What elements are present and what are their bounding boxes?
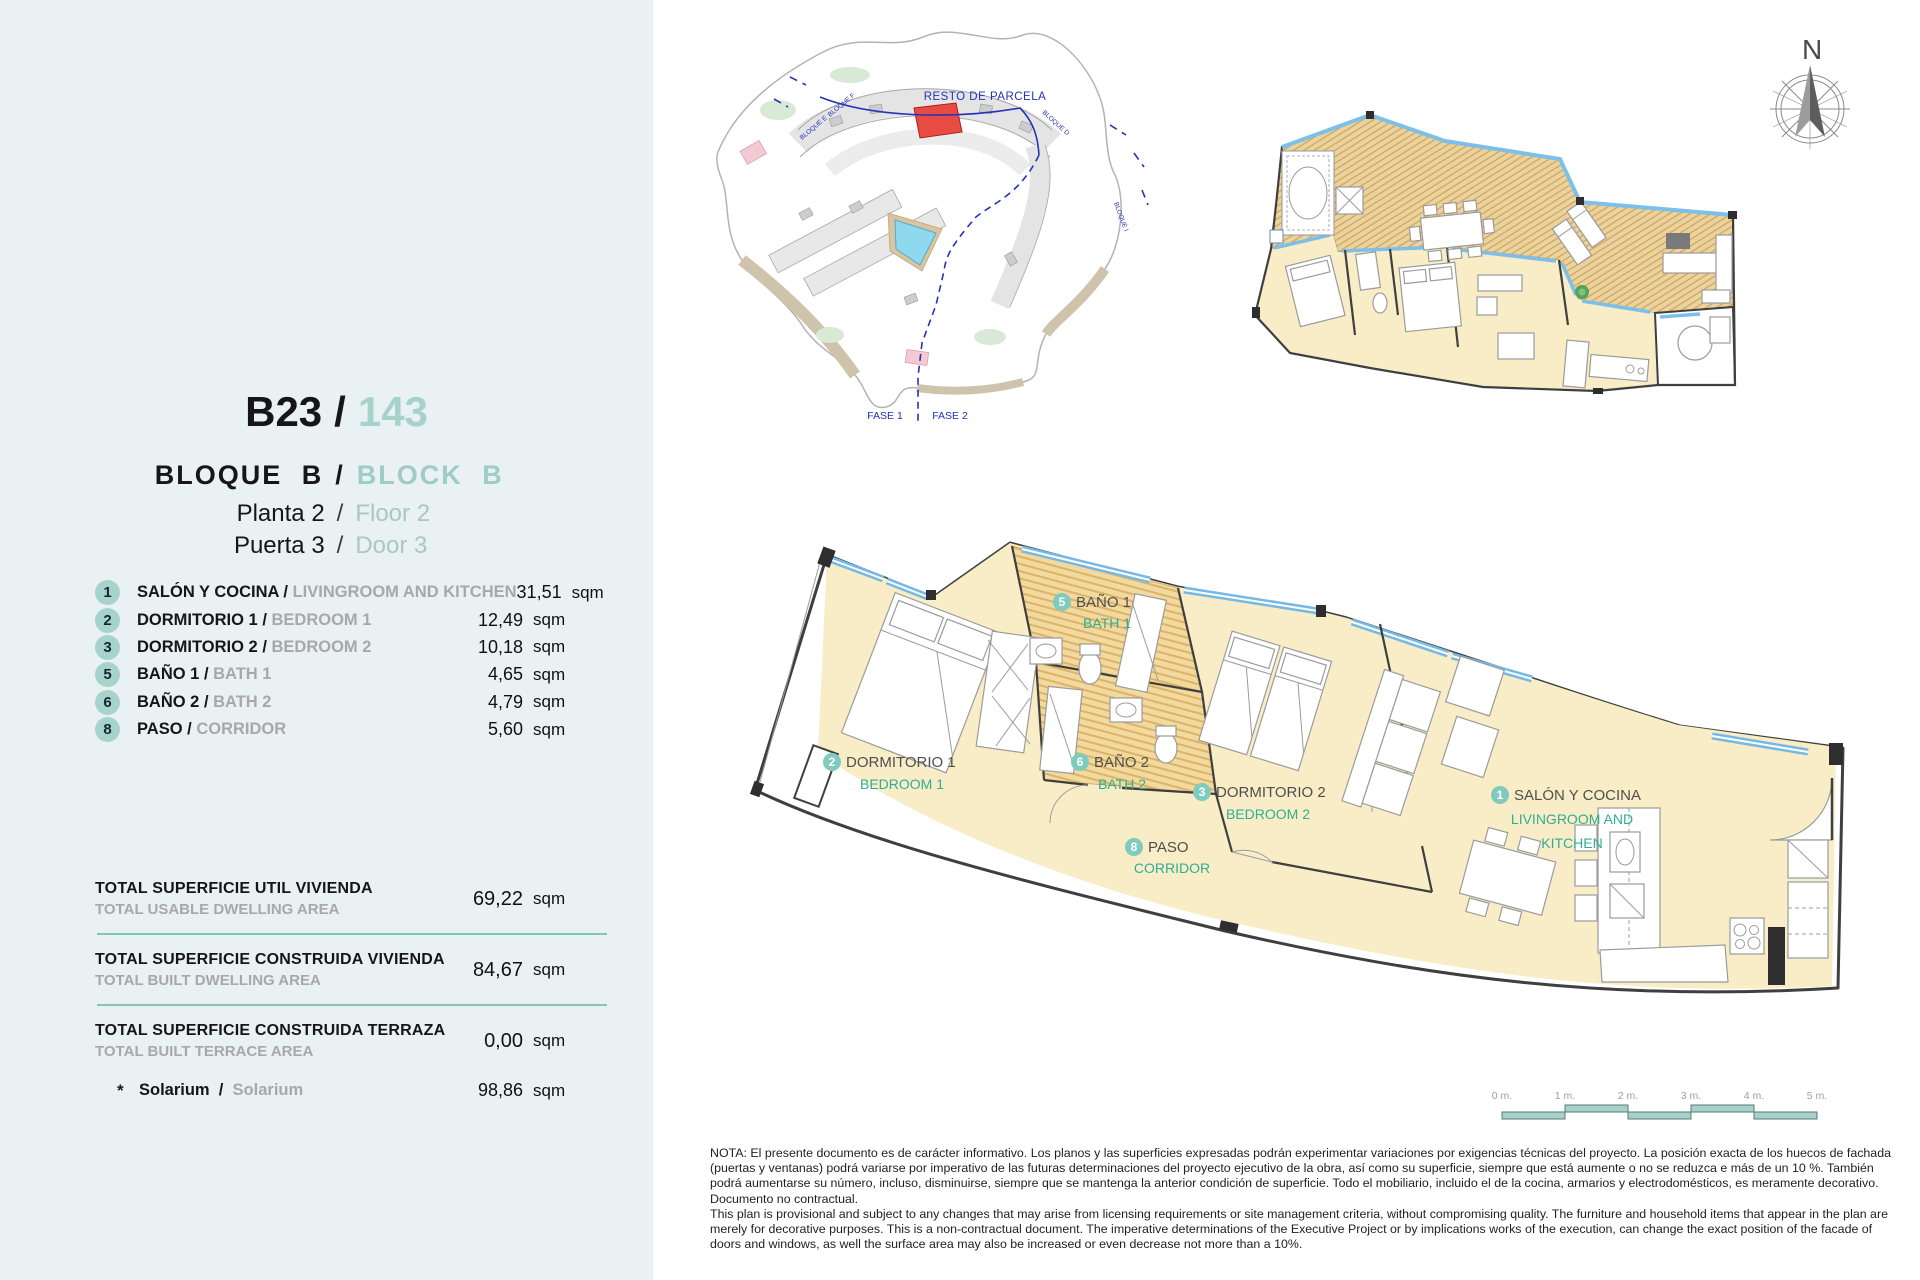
room-number-badge: 1 (95, 580, 120, 605)
scale-bar: 0 m. 1 m. 2 m. 3 m. 4 m. 5 m. (1490, 1085, 1850, 1140)
total-unit: sqm (533, 1031, 575, 1051)
room-number-badge: 5 (95, 662, 120, 687)
door-es: Puerta 3 (70, 532, 325, 560)
totals-section: TOTAL SUPERFICIE UTIL VIVIENDA TOTAL USA… (95, 880, 575, 1101)
pink-area (905, 350, 929, 366)
svg-text:3 m.: 3 m. (1681, 1090, 1701, 1102)
floor-en: Floor 2 (355, 500, 610, 528)
room-area-value: 10,18 (461, 637, 523, 658)
svg-text:BAÑO 2: BAÑO 2 (1094, 754, 1149, 771)
svg-text:3: 3 (1199, 785, 1206, 799)
solarium-es: Solarium (139, 1081, 210, 1099)
block-en: BLOCK B (357, 460, 610, 491)
room-sep: / (262, 638, 267, 656)
room-row-corridor: 8 PASO / CORRIDOR 5,60 sqm (95, 716, 575, 743)
svg-text:BATH 2: BATH 2 (1098, 776, 1146, 792)
floor-sep: / (325, 500, 356, 528)
fase1-label: FASE 1 (867, 410, 903, 422)
terrace-side-table (1336, 187, 1363, 214)
unit-title: B23 / 143 (70, 388, 610, 436)
total-terrace-area: TOTAL SUPERFICIE CONSTRUIDA TERRAZA TOTA… (95, 1022, 575, 1060)
room-area-value: 4,65 (461, 664, 523, 685)
unit-code: B23 (70, 388, 322, 436)
green-area (974, 329, 1006, 345)
total-value: 84,67 (461, 959, 523, 982)
main-floor-plan: 5 BAÑO 1 BATH 1 2 DORMITORIO 1 BEDROOM 1… (610, 540, 1900, 1020)
floorplan-sheet: { "colors": { "panel_bg": "#e9f1f3", "ac… (0, 0, 1920, 1280)
svg-text:2 m.: 2 m. (1618, 1090, 1638, 1102)
room-sep: / (262, 611, 267, 629)
svg-text:5: 5 (1059, 595, 1066, 609)
green-area (760, 100, 796, 120)
svg-text:PASO: PASO (1148, 839, 1189, 856)
highlighted-unit (914, 103, 962, 138)
svg-text:KITCHEN: KITCHEN (1541, 835, 1602, 851)
block-es: BLOQUE B (70, 460, 323, 491)
scale-segments (1502, 1105, 1817, 1119)
room-name-es: PASO (137, 720, 183, 738)
room-number-badge: 6 (95, 690, 120, 715)
unit-number: 143 (358, 388, 610, 436)
svg-text:BEDROOM 2: BEDROOM 2 (1226, 806, 1310, 822)
door-line: Puerta 3 / Door 3 (70, 532, 610, 560)
floor-es: Planta 2 (70, 500, 325, 528)
total-usable-area: TOTAL SUPERFICIE UTIL VIVIENDA TOTAL USA… (95, 880, 575, 918)
svg-text:CORRIDOR: CORRIDOR (1134, 860, 1210, 876)
site-plan: RESTO DE PARCELA FASE 1 FASE 2 BLOQUE E … (690, 5, 1165, 445)
room-name-es: DORMITORIO 1 (137, 611, 258, 629)
plant-center (1579, 289, 1586, 296)
room-number-badge: 3 (95, 635, 120, 660)
divider (97, 933, 607, 935)
room-area-unit: sqm (533, 665, 575, 685)
room-area-value: 31,51 (517, 582, 562, 603)
note-spanish: NOTA: El presente documento es de caráct… (710, 1146, 1896, 1207)
total-title-en: TOTAL BUILT TERRACE AREA (95, 1043, 461, 1060)
svg-text:BEDROOM 1: BEDROOM 1 (860, 776, 944, 792)
green-area (816, 327, 844, 343)
total-value: 69,22 (461, 888, 523, 911)
block-line: BLOQUE B / BLOCK B (70, 460, 610, 491)
room-name-en: BEDROOM 2 (272, 638, 372, 656)
room-sep: / (204, 665, 209, 683)
room-number-badge: 8 (95, 717, 120, 742)
door-sep: / (325, 532, 356, 560)
room-row-bath1: 5 BAÑO 1 / BATH 1 4,65 sqm (95, 661, 575, 688)
total-title-en: TOTAL USABLE DWELLING AREA (95, 901, 461, 918)
svg-text:DORMITORIO 1: DORMITORIO 1 (846, 754, 956, 771)
total-built-area: TOTAL SUPERFICIE CONSTRUIDA VIVIENDA TOT… (95, 951, 575, 989)
solarium-row: * Solarium / Solarium 98,86 sqm (95, 1080, 575, 1101)
total-title-en: TOTAL BUILT DWELLING AREA (95, 972, 461, 989)
room-name-en: CORRIDOR (196, 720, 286, 738)
room-name-en: BEDROOM 1 (272, 611, 372, 629)
svg-text:0 m.: 0 m. (1492, 1090, 1512, 1102)
solarium-unit: sqm (533, 1081, 575, 1101)
block-sep: / (323, 460, 357, 491)
total-unit: sqm (533, 960, 575, 980)
note-english: This plan is provisional and subject to … (710, 1207, 1896, 1253)
room-row-bedroom2: 3 DORMITORIO 2 / BEDROOM 2 10,18 sqm (95, 634, 575, 661)
interior-floor (818, 543, 1836, 989)
room-row-bath2: 6 BAÑO 2 / BATH 2 4,79 sqm (95, 689, 575, 716)
room-area-unit: sqm (533, 692, 575, 712)
solarium-en: Solarium (233, 1081, 304, 1099)
room-name-en: LIVINGROOM AND KITCHEN (293, 583, 517, 601)
fase2-label: FASE 2 (932, 410, 968, 422)
room-area-unit: sqm (533, 720, 575, 740)
solarium-star: * (95, 1081, 121, 1101)
svg-text:6: 6 (1077, 755, 1084, 769)
resto-de-parcela-label: RESTO DE PARCELA (924, 91, 1047, 103)
solarium-value: 98,86 (461, 1080, 523, 1101)
floor-line: Planta 2 / Floor 2 (70, 500, 610, 528)
room-row-salon: 1 SALÓN Y COCINA / LIVINGROOM AND KITCHE… (95, 579, 575, 606)
room-area-value: 5,60 (461, 719, 523, 740)
total-title-es: TOTAL SUPERFICIE UTIL VIVIENDA (95, 880, 461, 898)
divider (97, 1004, 607, 1006)
room-area-value: 4,79 (461, 692, 523, 713)
room-name-en: BATH 1 (213, 665, 271, 683)
room-sep: / (204, 693, 209, 711)
svg-text:2: 2 (829, 755, 836, 769)
svg-text:5 m.: 5 m. (1807, 1090, 1827, 1102)
room-row-bedroom1: 2 DORMITORIO 1 / BEDROOM 1 12,49 sqm (95, 606, 575, 633)
green-area (830, 67, 870, 83)
total-title-es: TOTAL SUPERFICIE CONSTRUIDA VIVIENDA (95, 951, 461, 969)
north-letter: N (1802, 34, 1822, 65)
total-unit: sqm (533, 889, 575, 909)
svg-text:1: 1 (1497, 788, 1504, 802)
total-value: 0,00 (461, 1030, 523, 1053)
svg-text:SALÓN Y COCINA: SALÓN Y COCINA (1514, 787, 1641, 804)
total-title-es: TOTAL SUPERFICIE CONSTRUIDA TERRAZA (95, 1022, 461, 1040)
svg-text:4 m.: 4 m. (1744, 1090, 1764, 1102)
room-name-en: BATH 2 (213, 693, 271, 711)
room-number-badge: 2 (95, 608, 120, 633)
room-area-unit: sqm (533, 637, 575, 657)
svg-text:DORMITORIO 2: DORMITORIO 2 (1216, 784, 1326, 801)
solarium-plan (1230, 85, 1800, 425)
scale-labels: 0 m. 1 m. 2 m. 3 m. 4 m. 5 m. (1492, 1090, 1827, 1102)
solarium-sep: / (219, 1081, 224, 1099)
unit-sep: / (322, 388, 358, 436)
room-name-es: DORMITORIO 2 (137, 638, 258, 656)
room-name-es: BAÑO 1 (137, 665, 199, 683)
room-name-es: BAÑO 2 (137, 693, 199, 711)
room-sep: / (187, 720, 192, 738)
room-area-unit: sqm (572, 583, 604, 603)
svg-text:8: 8 (1131, 840, 1138, 854)
room-area-unit: sqm (533, 610, 575, 630)
room-area-value: 12,49 (461, 610, 523, 631)
svg-text:BAÑO 1: BAÑO 1 (1076, 594, 1131, 611)
room-name-es: SALÓN Y COCINA (137, 583, 279, 601)
svg-text:LIVINGROOM AND: LIVINGROOM AND (1511, 811, 1633, 827)
room-sep: / (283, 583, 288, 601)
door-en: Door 3 (355, 532, 610, 560)
room-area-list: 1 SALÓN Y COCINA / LIVINGROOM AND KITCHE… (95, 579, 575, 743)
disclaimer-note: NOTA: El presente documento es de caráct… (710, 1146, 1896, 1252)
info-panel: B23 / 143 BLOQUE B / BLOCK B Planta 2 / … (0, 0, 653, 1280)
svg-text:1 m.: 1 m. (1555, 1090, 1575, 1102)
svg-text:BATH 1: BATH 1 (1083, 615, 1131, 631)
